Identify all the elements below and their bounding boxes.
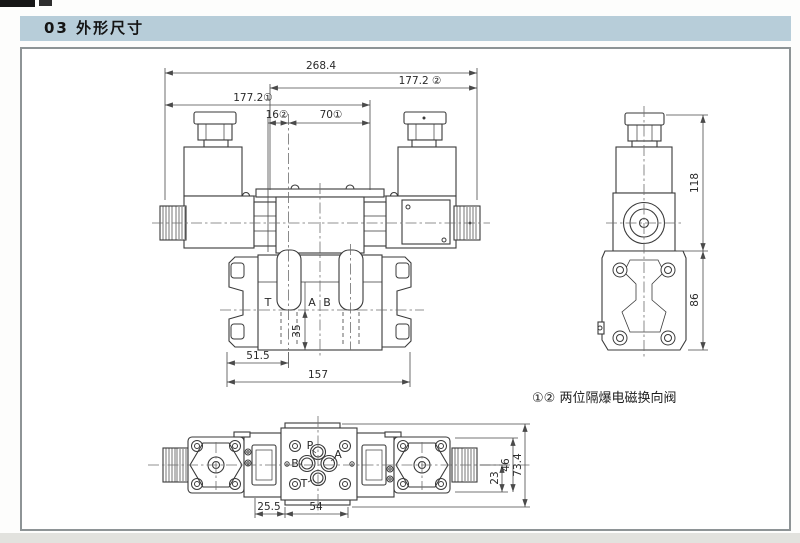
- dim-16: 16②: [266, 109, 289, 121]
- dim-25-5: 25.5: [257, 501, 280, 513]
- dim-157: 157: [308, 369, 328, 381]
- dim-268-4: 268.4: [306, 60, 336, 72]
- front-port-b-label: B: [323, 296, 331, 309]
- bottom-port-a-label: A: [334, 448, 342, 461]
- dim-46: 46: [500, 458, 512, 472]
- valve-caption: ①② 两位隔爆电磁换向阀: [532, 390, 676, 406]
- side-view: [598, 113, 686, 350]
- front-solenoid-left: [160, 112, 276, 248]
- catalog-page: { "page": { "header": "03 外形尺寸" }, "capt…: [0, 0, 800, 543]
- dim-23: 23: [489, 471, 501, 484]
- dim-177-2-left: 177.2①: [233, 92, 272, 104]
- dim-118: 118: [689, 173, 701, 193]
- dim-177-2-right: 177.2 ②: [399, 75, 442, 87]
- dim-51-5: 51.5: [246, 350, 269, 362]
- bottom-port-p-label: P: [307, 439, 314, 452]
- dim-73-4: 73.4: [512, 453, 524, 477]
- bottom-port-t-label: T: [300, 477, 308, 490]
- bottom-view: P A B T: [163, 423, 477, 505]
- dim-35: 35: [291, 324, 303, 337]
- dim-70: 70①: [320, 109, 343, 121]
- front-port-a-label: A: [308, 296, 316, 309]
- front-port-t-label: T: [264, 296, 272, 309]
- technical-drawing: T A B: [0, 0, 800, 543]
- bottom-port-b-label: B: [291, 457, 299, 470]
- dim-86: 86: [689, 293, 701, 307]
- dim-54: 54: [309, 501, 323, 513]
